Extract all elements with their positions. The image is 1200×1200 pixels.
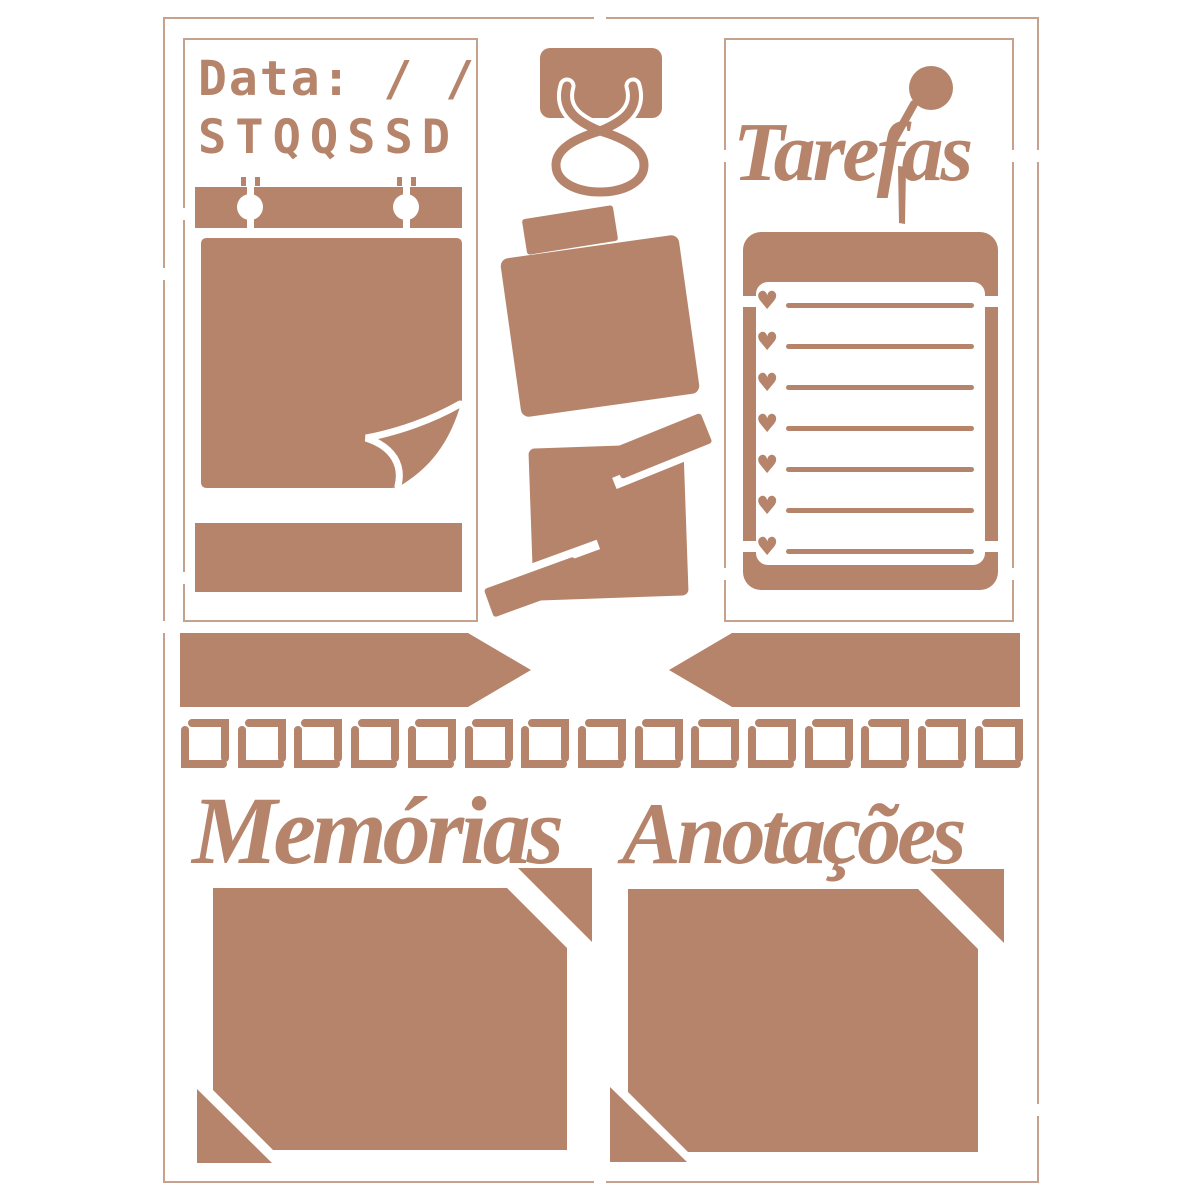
photo-corner-bottom-left bbox=[197, 1089, 272, 1163]
photo-corner-top-right bbox=[930, 869, 1004, 943]
photo-corners bbox=[0, 0, 1200, 1200]
stencil-sheet: Data: / / STQQSSD Tarefas bbox=[0, 0, 1200, 1200]
photo-corner-top-right bbox=[518, 868, 592, 942]
photo-corner-bottom-left bbox=[610, 1087, 687, 1162]
